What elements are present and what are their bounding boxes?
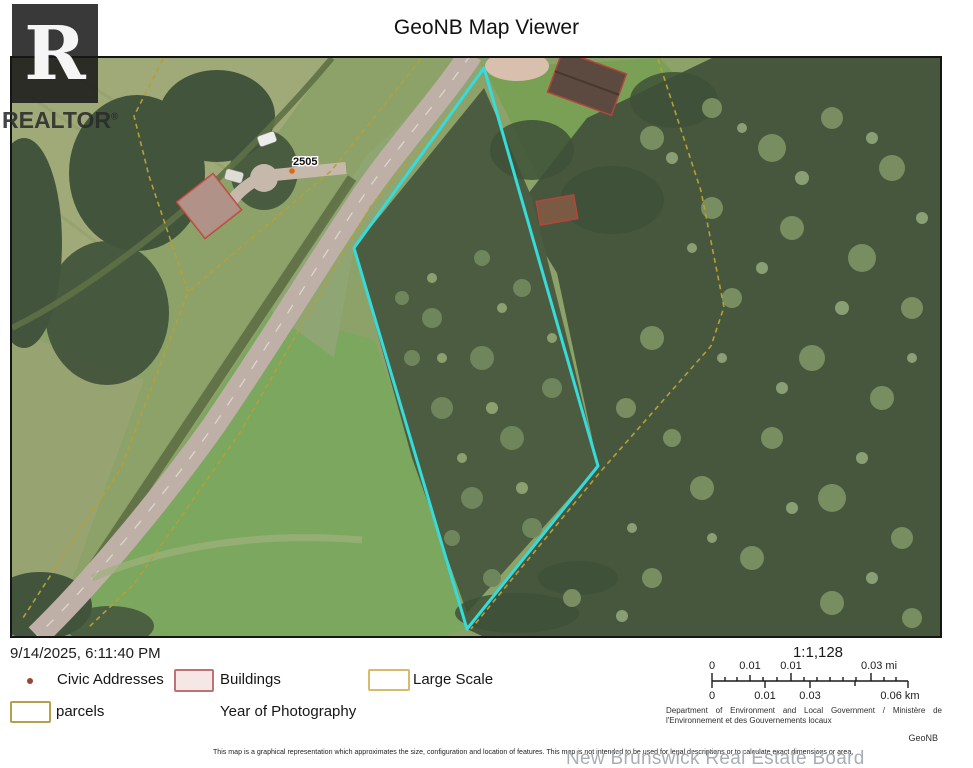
geonb-map-viewer-page: GeoNB Map Viewer [0,0,973,768]
attribution-text: Department of Environment and Local Gove… [666,706,942,725]
scale-mi-tick-0: 0 [709,660,715,672]
scale-mi-tick-3: 0.03 mi [861,660,897,672]
legend-label-large-scale: Large Scale [413,671,493,688]
scale-km-tick-0: 0 [709,690,715,702]
board-watermark: New Brunswick Real Estate Board [566,748,865,768]
realtor-logo-letter: R [24,17,86,91]
realtor-logo-icon: R [12,4,98,103]
scale-km-tick-1: 0.01 [754,690,775,702]
civic-address-dot[interactable] [289,168,295,174]
scale-mi-tick-2: 0.01 [780,660,801,672]
legend-label-civic-addresses: Civic Addresses [57,671,164,688]
aerial-imagery: 2505 [12,58,940,636]
legend-buildings-swatch-icon [174,669,214,692]
scale-ratio: 1:1,128 [743,644,893,661]
map-timestamp: 9/14/2025, 6:11:40 PM [10,645,161,662]
legend-label-year-of-photography: Year of Photography [220,703,356,720]
legend-label-parcels: parcels [56,703,104,720]
legend-parcels-swatch-icon [10,701,51,723]
driveway-pad [250,164,278,192]
registered-mark: ® [111,111,118,122]
page-title: GeoNB Map Viewer [0,16,973,40]
legend-label-buildings: Buildings [220,671,281,688]
geonb-credit: GeoNB [858,733,938,743]
map-canvas[interactable]: 2505 [10,56,942,638]
civic-address-label: 2505 [293,156,317,168]
legend-civic-dot-icon [27,678,33,684]
scale-mi-tick-1: 0.01 [739,660,760,672]
scale-km-tick-3: 0.06 km [880,690,919,702]
scale-km-tick-2: 0.03 [799,690,820,702]
realtor-brand-text: REALTOR® [2,107,122,134]
scale-bar [700,673,915,689]
legend-large-scale-swatch-icon [368,669,410,691]
